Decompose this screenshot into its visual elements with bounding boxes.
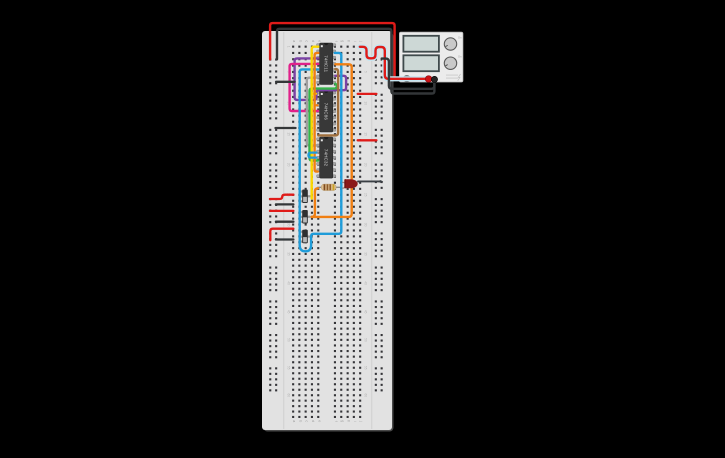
svg-text:50: 50 bbox=[364, 338, 368, 342]
svg-text:On: On bbox=[458, 36, 462, 40]
svg-text:40: 40 bbox=[287, 281, 291, 285]
svg-text:h: h bbox=[347, 420, 351, 422]
svg-text:d: d bbox=[311, 420, 315, 422]
svg-text:45: 45 bbox=[364, 310, 368, 314]
svg-text:35: 35 bbox=[364, 252, 368, 256]
svg-text:74HC11: 74HC11 bbox=[324, 55, 329, 72]
svg-text:f: f bbox=[334, 421, 338, 422]
svg-text:e: e bbox=[317, 40, 321, 42]
svg-text:g: g bbox=[340, 420, 344, 422]
svg-text:j: j bbox=[359, 40, 363, 42]
svg-text:40: 40 bbox=[364, 281, 368, 285]
svg-text:60: 60 bbox=[287, 393, 291, 397]
svg-text:20: 20 bbox=[287, 163, 291, 167]
svg-text:j: j bbox=[359, 420, 363, 422]
svg-text:b: b bbox=[298, 40, 302, 42]
svg-text:h: h bbox=[347, 40, 351, 42]
svg-text:c: c bbox=[305, 40, 309, 42]
svg-text:55: 55 bbox=[364, 366, 368, 370]
svg-text:45: 45 bbox=[287, 310, 291, 314]
svg-text:74HC32: 74HC32 bbox=[324, 149, 329, 167]
svg-text:f: f bbox=[334, 41, 338, 42]
svg-text:15: 15 bbox=[287, 132, 291, 136]
svg-text:74HC86: 74HC86 bbox=[324, 103, 329, 121]
svg-text:15: 15 bbox=[364, 132, 368, 136]
svg-text:e: e bbox=[317, 420, 321, 422]
svg-text:1: 1 bbox=[287, 46, 291, 48]
svg-text:a: a bbox=[292, 420, 296, 422]
svg-text:a: a bbox=[292, 40, 296, 42]
svg-text:On: On bbox=[458, 55, 462, 59]
svg-text:g: g bbox=[340, 40, 344, 42]
svg-text:30: 30 bbox=[364, 223, 368, 227]
svg-text:25: 25 bbox=[364, 193, 368, 197]
svg-text:20: 20 bbox=[364, 163, 368, 167]
svg-text:5: 5 bbox=[364, 71, 368, 73]
svg-text:10: 10 bbox=[364, 101, 368, 105]
svg-text:55: 55 bbox=[287, 366, 291, 370]
svg-text:50: 50 bbox=[287, 338, 291, 342]
svg-text:35: 35 bbox=[287, 252, 291, 256]
svg-text:60: 60 bbox=[364, 393, 368, 397]
svg-text:30: 30 bbox=[287, 223, 291, 227]
svg-text:d: d bbox=[311, 40, 315, 42]
svg-text:c: c bbox=[305, 420, 309, 422]
svg-text:b: b bbox=[298, 420, 302, 422]
